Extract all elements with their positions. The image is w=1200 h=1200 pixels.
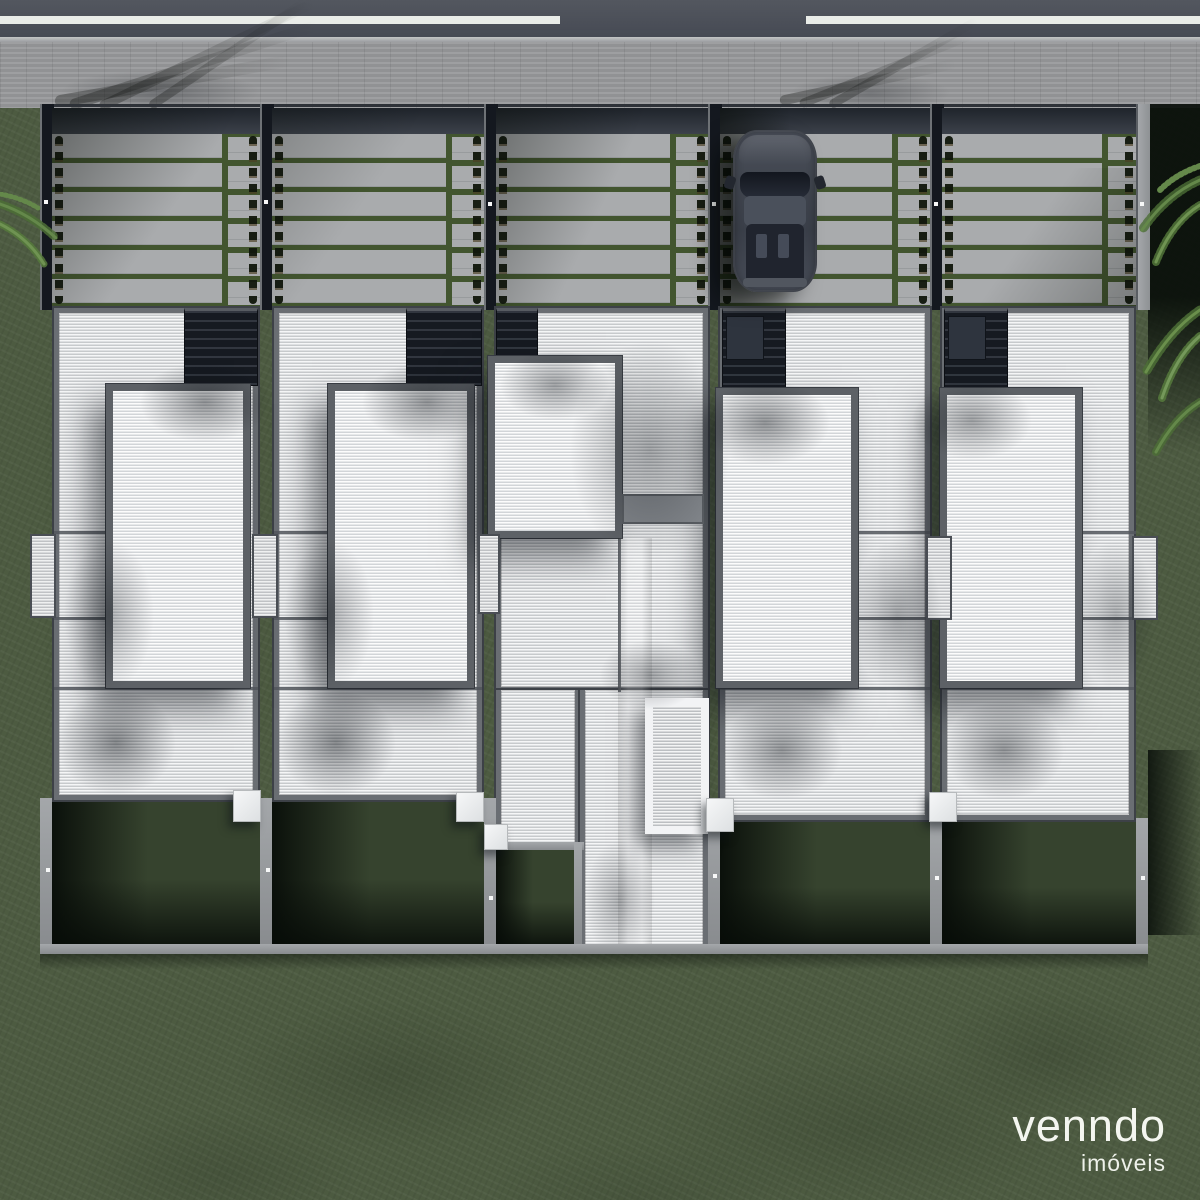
terrace-unit3 [622, 494, 704, 524]
gate-light [934, 202, 938, 206]
aerial-render: venndo imóveis [0, 0, 1200, 1200]
palm-fronds-right [1126, 150, 1200, 460]
shrub-row [249, 136, 257, 304]
entry-gate-band [496, 108, 708, 134]
car-sunroof-cell [756, 234, 767, 258]
driveway-unit5 [942, 108, 1136, 308]
upper-roof-unit2 [328, 384, 474, 688]
shrub-row [723, 136, 731, 304]
lane-dash [806, 16, 1200, 24]
roof-seam [856, 531, 930, 534]
car-rear-glass [746, 224, 804, 286]
entry-gate-band [942, 108, 1136, 134]
parked-car [733, 130, 817, 292]
brand-tagline: imóveis [1012, 1152, 1166, 1175]
entry-gate-band [52, 108, 260, 134]
upper-roof-unit3 [488, 356, 622, 538]
brand-name: venndo [1012, 1103, 1166, 1148]
rear-wall [40, 944, 1148, 954]
shrub-row [275, 136, 283, 304]
car-roof [744, 196, 806, 226]
ac-unit [456, 792, 484, 822]
side-bumpout-unit3 [478, 534, 500, 614]
lawn-mottle [80, 1110, 360, 1200]
front-property-line [40, 104, 1148, 107]
lawn-mottle [480, 1140, 800, 1200]
backyard-unit5 [942, 818, 1136, 946]
roof-seam [54, 617, 108, 620]
roof-seam [274, 617, 330, 620]
garage-pergola-unit1 [184, 308, 258, 386]
backyard-unit2 [272, 800, 484, 946]
roof-seam [274, 531, 330, 534]
upper-roof-unit4 [716, 388, 858, 688]
side-bumpout-unit4 [926, 536, 952, 620]
upper-roof-unit1 [106, 384, 250, 688]
side-bumpout-unit2 [252, 534, 278, 618]
car-windshield [740, 172, 810, 198]
yard-wall-light [713, 874, 717, 878]
yard-wall-light [935, 876, 939, 880]
driveway-unit3 [496, 108, 708, 308]
car-trunk [743, 278, 807, 287]
yard-wall-unit3 [574, 842, 582, 944]
car-sunroof-cell [778, 234, 789, 258]
gate-light [264, 200, 268, 204]
building-shadow-right [1148, 750, 1200, 935]
brand-logo: venndo imóveis [1012, 1103, 1166, 1175]
shrub-row [473, 136, 481, 304]
pool-pergola-unit3 [645, 698, 709, 834]
upper-roof-unit5 [940, 388, 1082, 688]
backyard-unit3 [496, 850, 576, 946]
ac-unit [233, 790, 261, 822]
backyard-unit1 [52, 800, 260, 946]
shrub-row [499, 136, 507, 304]
roof-seam [54, 531, 108, 534]
garage-skylight [726, 316, 764, 360]
ac-unit [706, 798, 734, 832]
roof-unit3-left-wing [496, 690, 580, 848]
gate-light [712, 202, 716, 206]
entry-gate-band [272, 108, 484, 134]
gate-light [488, 202, 492, 206]
yard-wall-light [46, 868, 50, 872]
driveway-unit1 [52, 108, 260, 308]
yard-wall-light [489, 896, 493, 900]
side-bumpout-unit5 [1132, 536, 1158, 620]
side-bumpout-unit1 [30, 534, 56, 618]
garage-skylight [948, 316, 986, 360]
rear-divider-wall [930, 818, 942, 944]
ac-unit [929, 792, 957, 822]
yard-wall-light [1141, 876, 1145, 880]
driveway-unit2 [272, 108, 484, 308]
roof-seam [1080, 531, 1136, 534]
roof-seam [856, 617, 930, 620]
shrub-row [919, 136, 927, 304]
shrub-row [945, 136, 953, 304]
ac-unit [484, 824, 508, 850]
rear-divider-wall [484, 798, 496, 944]
roof-seam [1080, 617, 1136, 620]
rear-divider-wall [1136, 818, 1148, 944]
car-hood [739, 135, 811, 165]
backyard-unit4 [720, 818, 930, 946]
wall-shadow-bottom [40, 954, 1148, 970]
shrub-row [697, 136, 705, 304]
palm-fronds-left [0, 192, 78, 276]
yard-wall-light [266, 868, 270, 872]
garage-pergola-unit2 [406, 308, 482, 386]
